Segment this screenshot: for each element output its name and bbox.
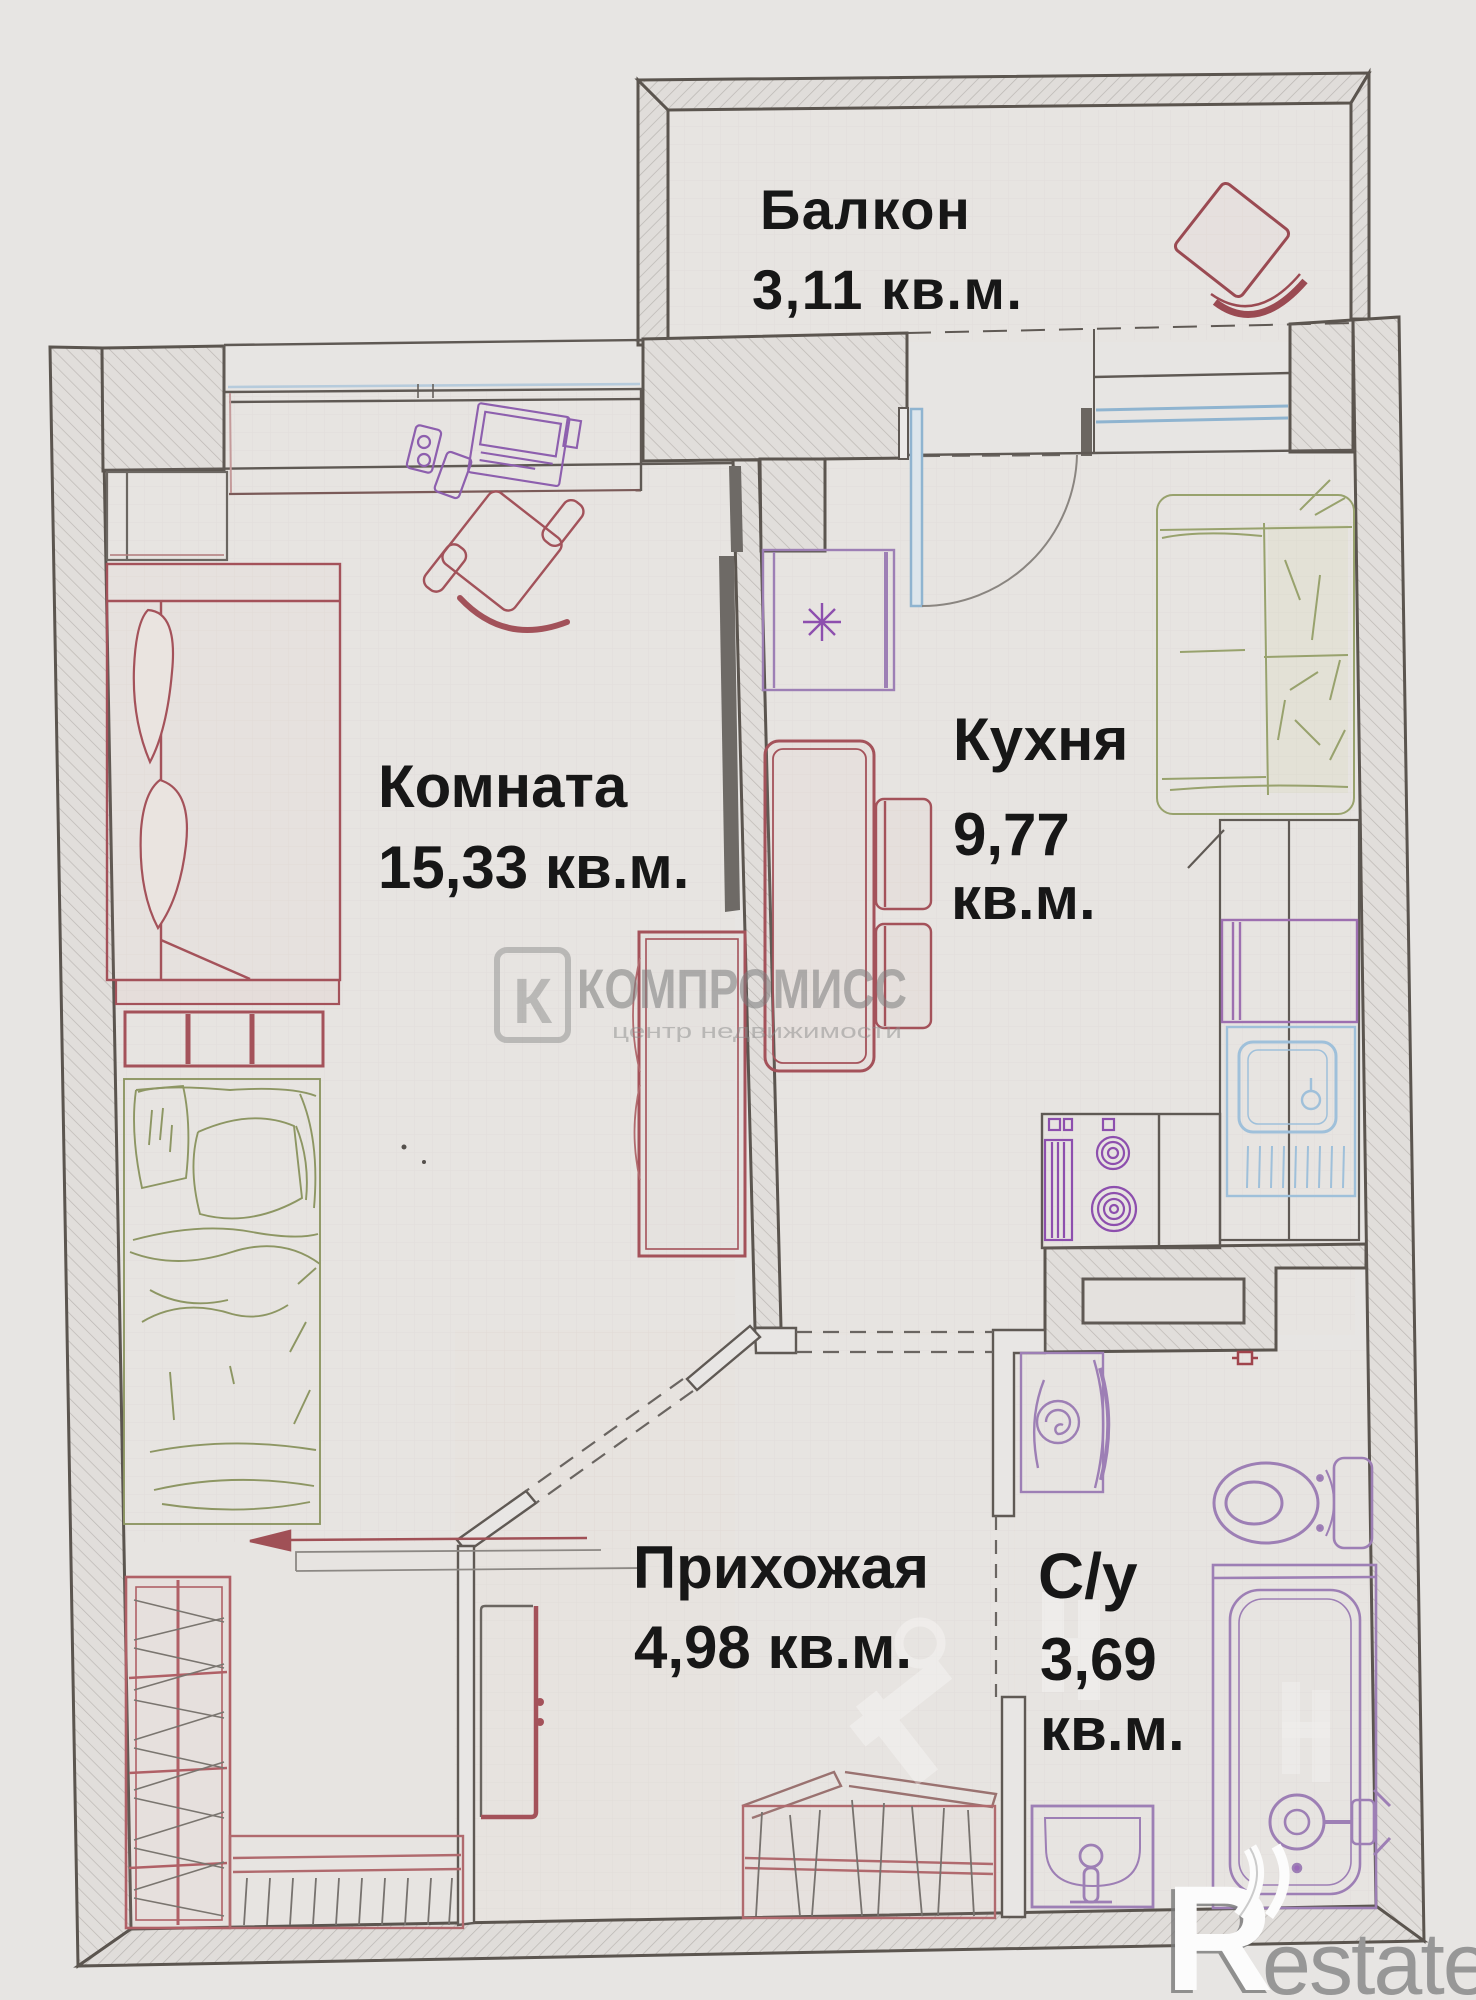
svg-text:estate: estate: [1262, 1914, 1476, 2000]
svg-text:КОМПРОМИСС: КОМПРОМИСС: [577, 957, 907, 1020]
svg-text:Комната: Комната: [378, 753, 628, 820]
svg-text:кв.м.: кв.м.: [951, 865, 1096, 932]
svg-text:Прихожая: Прихожая: [633, 1534, 929, 1601]
svg-text:3,11 кв.м.: 3,11 кв.м.: [752, 258, 1023, 321]
svg-text:4,98 кв.м.: 4,98 кв.м.: [634, 1614, 912, 1681]
svg-text:3,69: 3,69: [1040, 1626, 1157, 1693]
svg-text:К: К: [513, 965, 553, 1037]
svg-text:Кухня: Кухня: [953, 706, 1128, 773]
svg-text:С/у: С/у: [1038, 1540, 1138, 1612]
svg-text:9,77: 9,77: [953, 801, 1070, 868]
svg-text:15,33 кв.м.: 15,33 кв.м.: [378, 834, 689, 901]
svg-text:Балкон: Балкон: [760, 178, 971, 241]
svg-text:кв.м.: кв.м.: [1040, 1696, 1185, 1763]
svg-text:центр недвижимости: центр недвижимости: [612, 1021, 902, 1043]
